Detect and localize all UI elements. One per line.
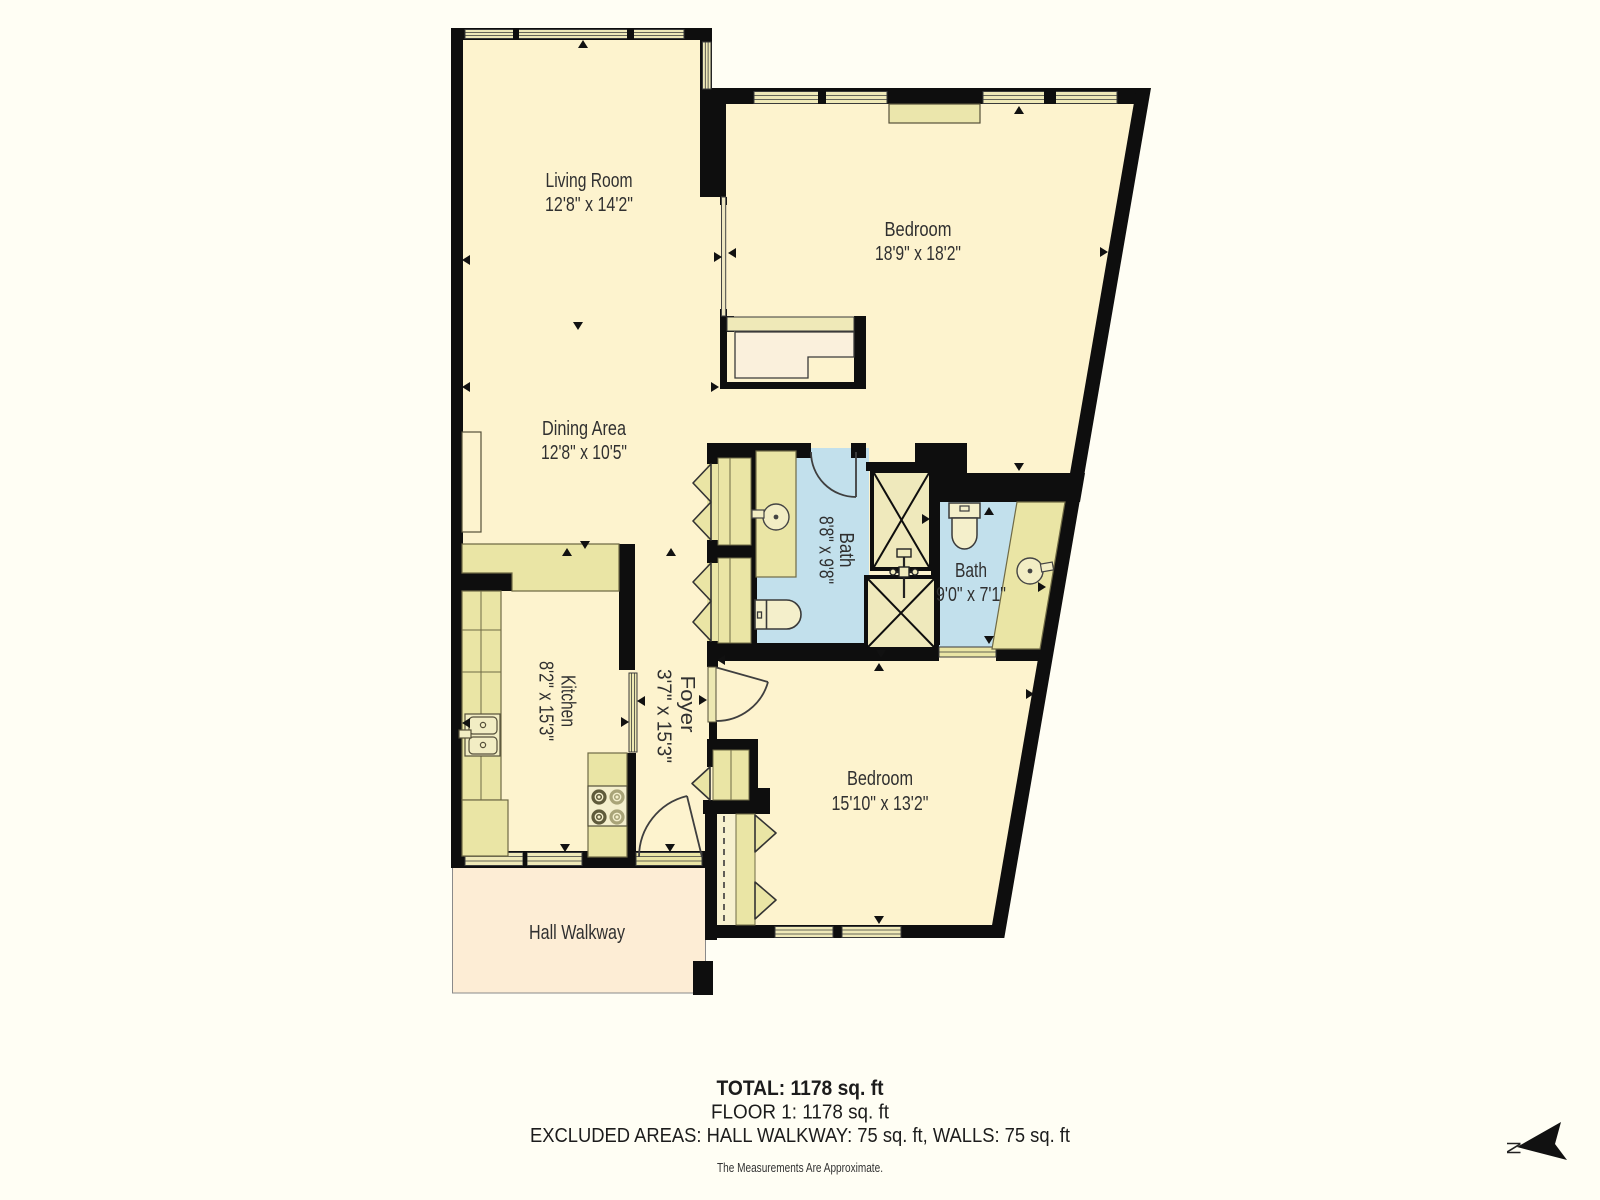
svg-text:Living Room: Living Room xyxy=(546,170,633,192)
svg-text:9'0" x 7'1": 9'0" x 7'1" xyxy=(936,584,1006,606)
svg-text:Foyer: Foyer xyxy=(676,676,698,733)
svg-text:8'2" x 15'3": 8'2" x 15'3" xyxy=(535,661,557,741)
svg-text:EXCLUDED AREAS: HALL WALKWAY:: EXCLUDED AREAS: HALL WALKWAY: 75 sq. ft,… xyxy=(530,1125,1070,1147)
svg-text:Bedroom: Bedroom xyxy=(847,768,913,790)
svg-text:N: N xyxy=(1502,1141,1523,1155)
svg-text:12'8" x 14'2": 12'8" x 14'2" xyxy=(545,194,633,216)
svg-text:12'8" x 10'5": 12'8" x 10'5" xyxy=(541,442,627,464)
svg-text:Kitchen: Kitchen xyxy=(557,675,579,727)
svg-text:FLOOR 1: 1178 sq. ft: FLOOR 1: 1178 sq. ft xyxy=(711,1102,889,1124)
svg-text:Bath: Bath xyxy=(955,560,987,582)
svg-text:Bedroom: Bedroom xyxy=(885,219,952,241)
svg-text:TOTAL: 1178 sq. ft: TOTAL: 1178 sq. ft xyxy=(717,1077,884,1100)
svg-text:15'10" x 13'2": 15'10" x 13'2" xyxy=(832,793,929,815)
svg-text:The Measurements Are Approxima: The Measurements Are Approximate. xyxy=(717,1161,883,1175)
svg-text:Dining Area: Dining Area xyxy=(542,418,627,440)
svg-text:3'7" x 15'3": 3'7" x 15'3" xyxy=(653,669,675,763)
svg-text:Bath: Bath xyxy=(836,533,859,568)
svg-text:Hall Walkway: Hall Walkway xyxy=(529,922,625,944)
svg-text:18'9" x 18'2": 18'9" x 18'2" xyxy=(875,243,961,265)
svg-text:8'8" x 9'8": 8'8" x 9'8" xyxy=(815,516,837,584)
